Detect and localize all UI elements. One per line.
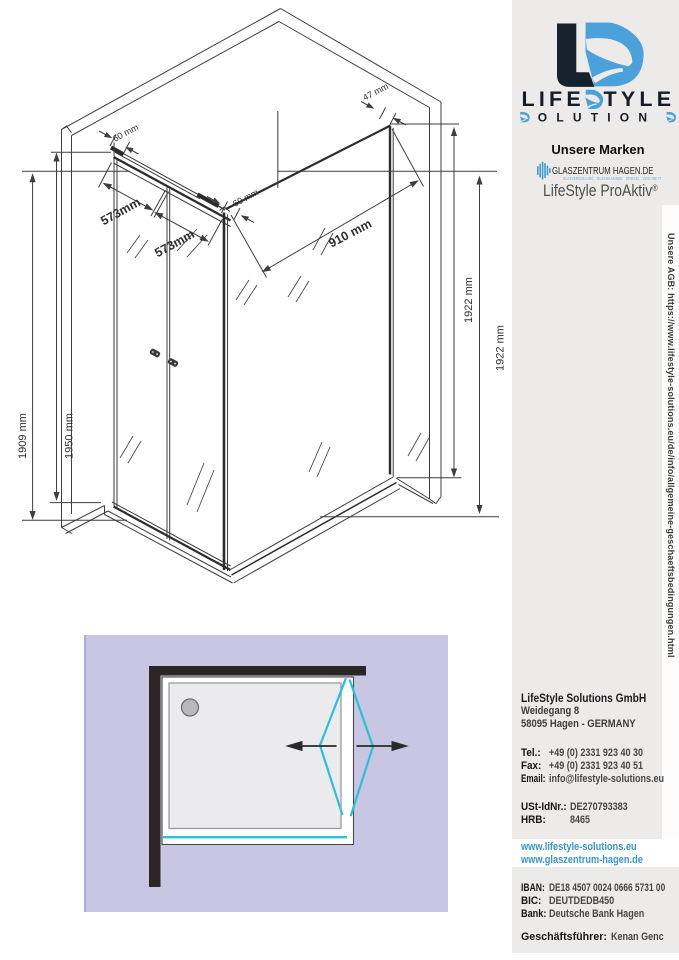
svg-text:OLUTION: OLUTION xyxy=(538,110,656,124)
svg-text:1922 mm: 1922 mm xyxy=(463,277,475,323)
svg-text:TYLE: TYLE xyxy=(604,87,676,111)
svg-text:60 mm: 60 mm xyxy=(111,122,140,144)
svg-text:573mm: 573mm xyxy=(98,195,142,228)
svg-text:910 mm: 910 mm xyxy=(326,216,374,250)
svg-text:1950 mm: 1950 mm xyxy=(64,413,76,459)
svg-text:1922 mm: 1922 mm xyxy=(495,325,507,371)
svg-text:LIFE: LIFE xyxy=(522,87,585,111)
svg-text:60 mm: 60 mm xyxy=(231,187,260,209)
svg-text:1909 mm: 1909 mm xyxy=(17,413,29,459)
svg-text:573mm: 573mm xyxy=(152,227,196,260)
svg-text:47 mm: 47 mm xyxy=(361,81,390,103)
